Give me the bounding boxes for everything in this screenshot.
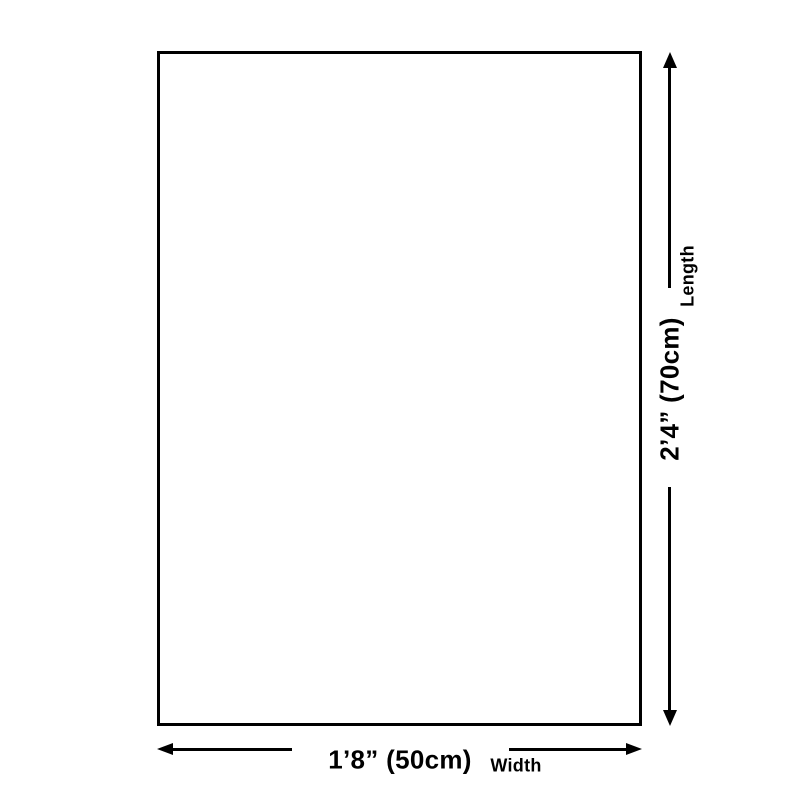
width-axis-label: Width	[490, 756, 541, 777]
width-value-label: 1’8” (50cm)	[328, 745, 471, 776]
product-outline-rect	[157, 51, 642, 726]
dimension-diagram: 2’4” (70cm) Length 1’8” (50cm) Width	[0, 0, 800, 800]
length-value-label: 2’4” (70cm)	[655, 317, 686, 460]
length-axis-label: Length	[678, 245, 699, 307]
width-arrow-right-line	[509, 748, 628, 751]
arrow-right-icon	[626, 743, 642, 755]
length-arrow-upper-line	[668, 66, 671, 288]
width-arrow-left-line	[171, 748, 292, 751]
length-arrow-lower-line	[668, 487, 671, 711]
arrow-down-icon	[663, 710, 677, 726]
